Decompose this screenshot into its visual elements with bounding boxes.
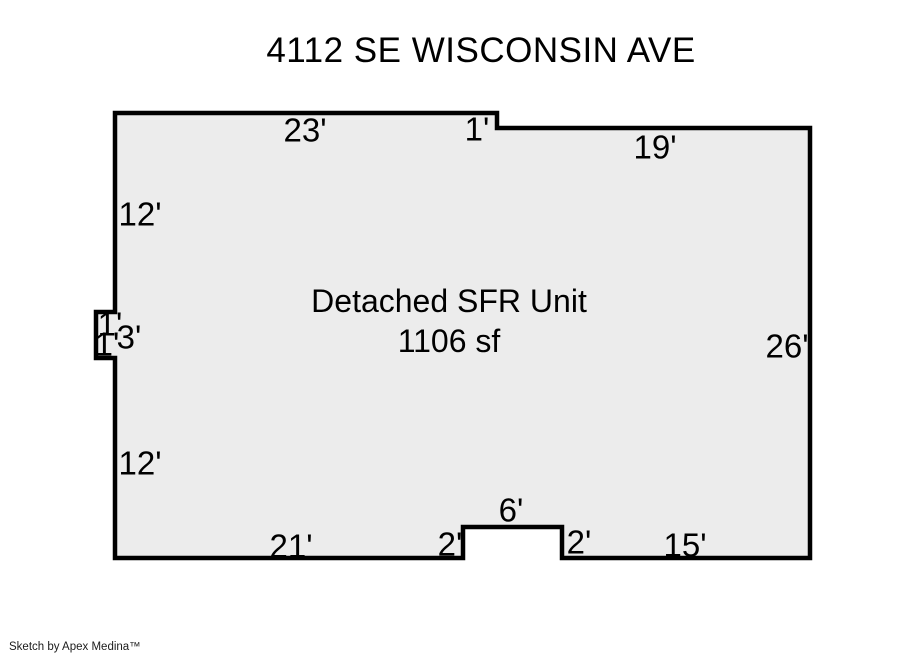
sketch-attribution: Sketch by Apex Medina™ (9, 641, 141, 653)
dim-left-notch-bottom: 1' (95, 328, 120, 361)
unit-label: Detached SFR Unit 1106 sf (311, 281, 587, 361)
dim-left-lower-wall: 12' (118, 447, 161, 480)
dim-bottom-step-right: 2' (567, 526, 592, 559)
floorplan-sketch-page: 4112 SE WISCONSIN AVE 23' 1' 19' 12' 1' … (0, 0, 900, 660)
dim-left-upper-wall: 12' (118, 198, 161, 231)
unit-area: 1106 sf (311, 321, 587, 361)
dim-bottom-step-left: 2' (438, 528, 463, 561)
unit-name: Detached SFR Unit (311, 281, 587, 321)
dim-bottom-right-wall: 15' (663, 529, 706, 562)
dim-bottom-left-wall: 21' (269, 530, 312, 563)
dim-bottom-inset-top: 6' (499, 494, 524, 527)
dim-left-notch-side: 3' (117, 321, 142, 354)
dim-top-step: 1' (465, 113, 490, 146)
dim-top-left-wall: 23' (283, 114, 326, 147)
dim-top-right-wall: 19' (633, 131, 676, 164)
dim-right-wall: 26' (765, 330, 808, 363)
